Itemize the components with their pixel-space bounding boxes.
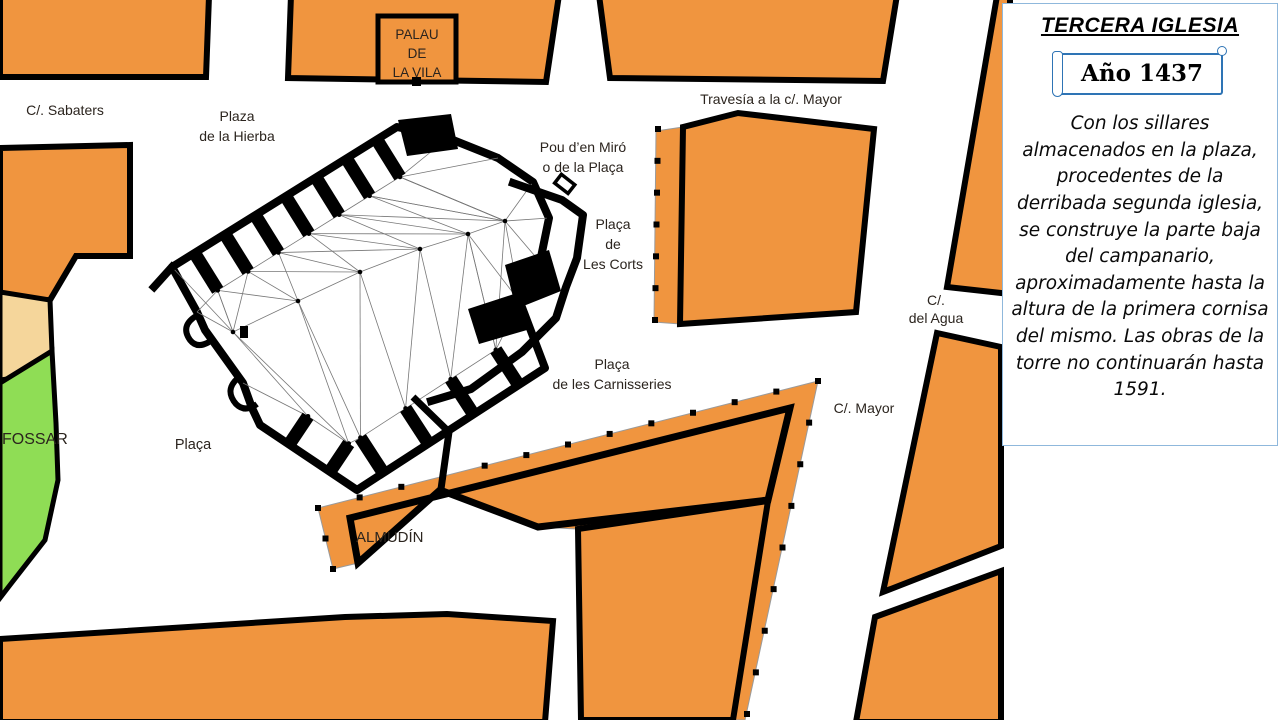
map-label-travesia: Travesía a la c/. Mayor: [700, 91, 842, 107]
well-pou-den-miro: [555, 174, 575, 193]
bell-tower-base: [398, 114, 458, 156]
city-block: [883, 333, 1001, 592]
info-panel: TERCERA IGLESIA Año 1437 Con los sillare…: [1002, 3, 1278, 446]
panel-description: Con los sillares almacenados en la plaza…: [1011, 111, 1269, 404]
plot-fossar: [0, 351, 58, 598]
year-banner: Año 1437: [1057, 53, 1223, 95]
map-label-fossar: FOSSAR: [2, 431, 68, 448]
year-banner-text: Año 1437: [1081, 60, 1203, 87]
city-block: [0, 145, 130, 303]
panel-title: TERCERA IGLESIA: [1009, 14, 1271, 38]
west-corner-stub: [154, 267, 172, 287]
city-block: [856, 571, 1001, 720]
map-label-c-sabaters: C/. Sabaters: [26, 102, 104, 118]
map-label-c-del-agua: C/.del Agua: [909, 292, 964, 326]
map-label-plaza-hierba: Plazade la Hierba: [199, 108, 275, 144]
city-block: [599, 0, 897, 81]
church-plan: [154, 114, 583, 490]
city-block: [0, 614, 553, 720]
map-label-placa-carnisseries: Plaçade les Carnisseries: [552, 356, 671, 392]
map-label-placa-les-corts: PlaçadeLes Corts: [583, 216, 643, 272]
city-block: [680, 113, 874, 324]
map-label-c-mayor: C/. Mayor: [834, 400, 895, 416]
wall-fragment: [240, 326, 248, 338]
scroll-roll-icon: [1052, 51, 1063, 97]
map-label-pou-den-miro: Pou d’en Miróo de la Plaça: [540, 139, 627, 175]
city-block: [947, 0, 1010, 294]
almudin-lower-wing: [578, 501, 768, 720]
city-block: [0, 0, 209, 77]
slide: C/. SabatersPlazade la HierbaPALAUDELA V…: [0, 0, 1280, 720]
map-label-almudin: ALMUDÍN: [356, 529, 424, 546]
map-label-placa: Plaça: [175, 437, 212, 453]
scroll-curl-icon: [1217, 46, 1227, 56]
